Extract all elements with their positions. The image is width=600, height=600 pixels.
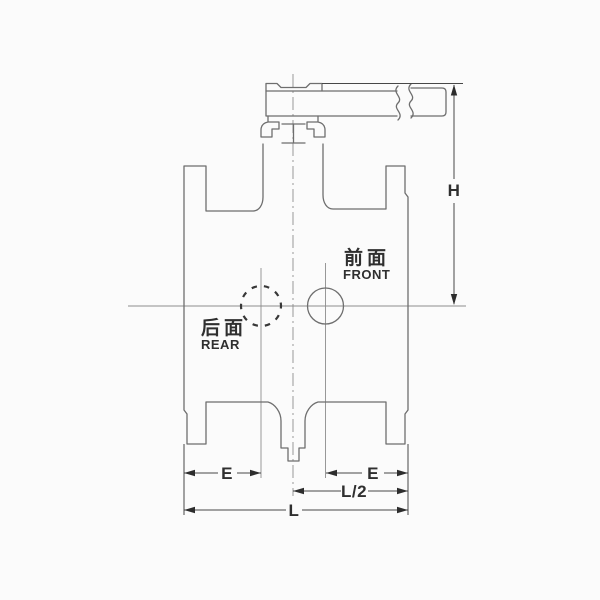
dim-label-h: H [448,181,461,200]
label-rear-en: REAR [201,337,240,352]
drawing-canvas: 前面 FRONT 后面 REAR H E E L/2 L [0,0,600,600]
label-rear-zh: 后面 [201,317,247,339]
dim-label-e-left: E [221,464,233,483]
valve-engineering-drawing: 前面 FRONT 后面 REAR H E E L/2 L [0,0,600,600]
dim-label-half-length: L/2 [341,482,367,501]
label-front-en: FRONT [343,267,390,282]
dim-label-length: L [289,501,300,520]
label-front-zh: 前面 [344,246,390,269]
paper-background [0,0,600,600]
dim-label-e-right: E [367,464,379,483]
